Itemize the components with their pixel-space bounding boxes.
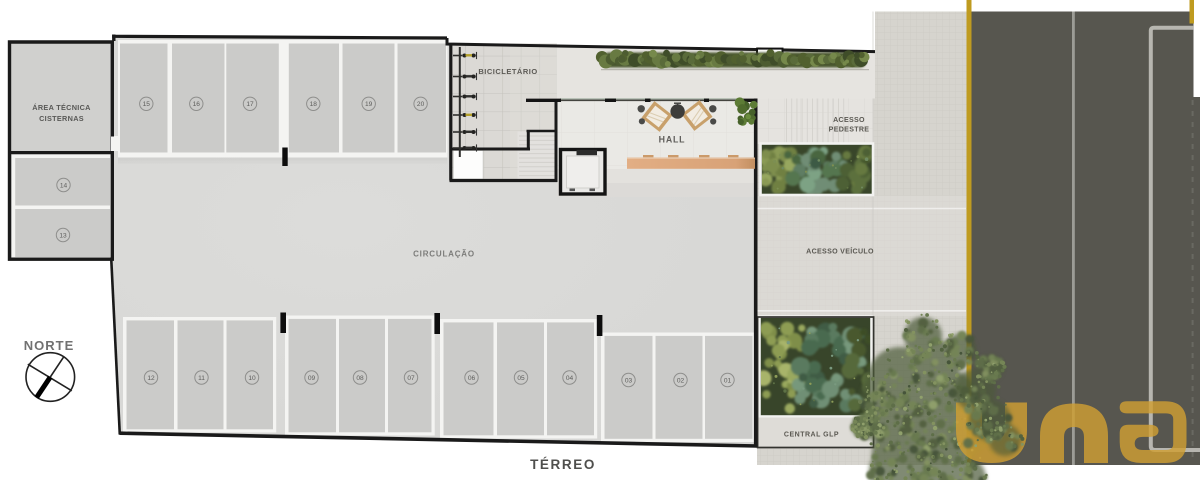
svg-text:ACESSO VEÍCULO: ACESSO VEÍCULO bbox=[806, 247, 874, 256]
svg-text:18: 18 bbox=[310, 101, 318, 108]
svg-text:13: 13 bbox=[59, 232, 67, 239]
svg-text:10: 10 bbox=[248, 375, 256, 382]
svg-text:PEDESTRE: PEDESTRE bbox=[829, 126, 870, 134]
svg-text:12: 12 bbox=[147, 375, 155, 382]
svg-text:08: 08 bbox=[356, 375, 364, 382]
svg-text:17: 17 bbox=[246, 101, 254, 108]
svg-text:ÁREA TÉCNICA: ÁREA TÉCNICA bbox=[32, 103, 91, 112]
svg-text:09: 09 bbox=[308, 375, 316, 382]
svg-text:TÉRREO: TÉRREO bbox=[530, 457, 596, 472]
svg-text:HALL: HALL bbox=[659, 135, 686, 145]
svg-text:CIRCULAÇÃO: CIRCULAÇÃO bbox=[413, 250, 475, 259]
svg-text:06: 06 bbox=[468, 375, 476, 382]
svg-text:CISTERNAS: CISTERNAS bbox=[39, 114, 84, 123]
svg-text:03: 03 bbox=[625, 377, 633, 384]
svg-text:16: 16 bbox=[193, 101, 201, 108]
svg-text:ACESSO: ACESSO bbox=[833, 116, 865, 124]
svg-text:15: 15 bbox=[143, 101, 151, 108]
svg-text:07: 07 bbox=[407, 375, 415, 382]
svg-text:14: 14 bbox=[60, 182, 68, 189]
svg-text:05: 05 bbox=[517, 375, 525, 382]
svg-text:BICICLETÁRIO: BICICLETÁRIO bbox=[478, 67, 537, 76]
svg-text:NORTE: NORTE bbox=[24, 338, 75, 353]
svg-text:01: 01 bbox=[724, 377, 732, 384]
svg-text:19: 19 bbox=[365, 101, 373, 108]
svg-text:04: 04 bbox=[566, 375, 574, 382]
svg-text:02: 02 bbox=[677, 377, 685, 384]
svg-text:20: 20 bbox=[417, 101, 425, 108]
svg-text:CENTRAL GLP: CENTRAL GLP bbox=[784, 432, 839, 439]
svg-text:11: 11 bbox=[198, 375, 205, 382]
